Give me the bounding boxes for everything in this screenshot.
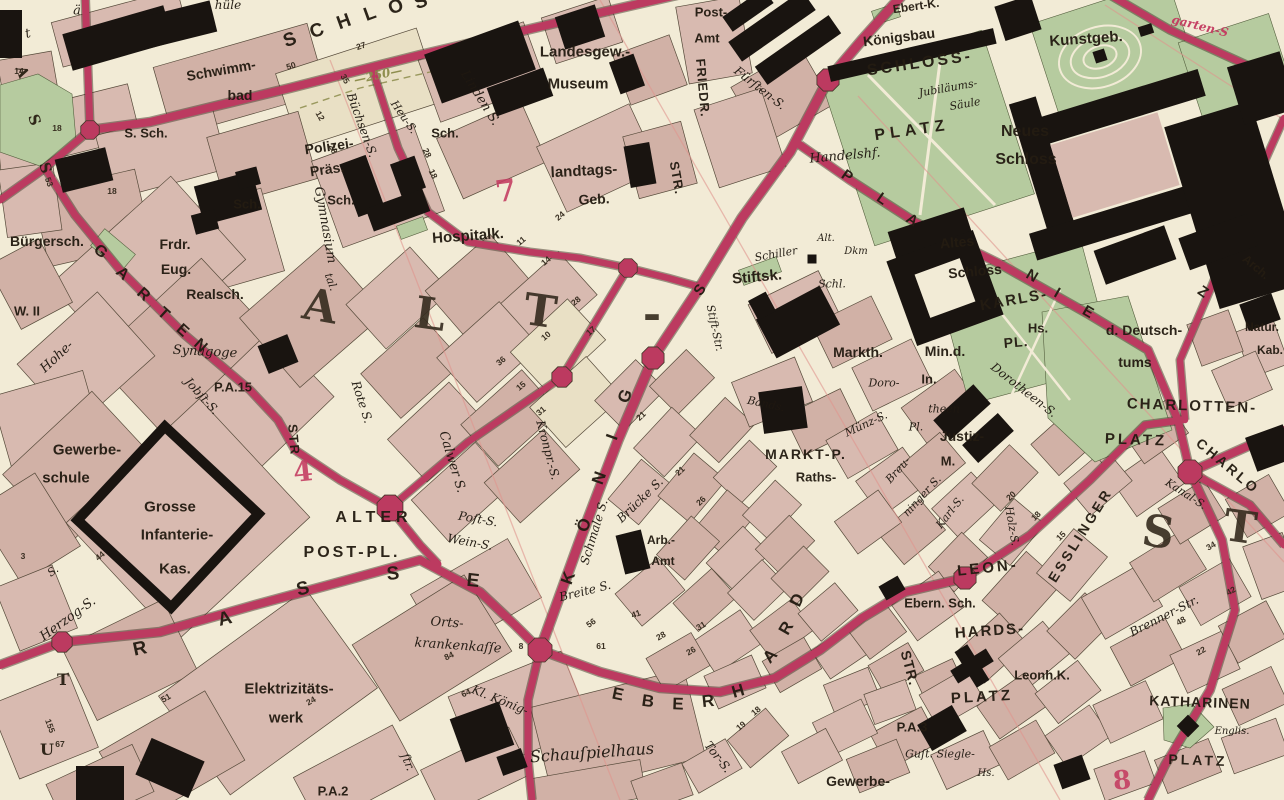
map-label: Gewerbe- — [53, 443, 121, 458]
building — [0, 10, 22, 58]
map-label: Sch. — [327, 194, 354, 207]
map-label: PL. — [1003, 334, 1029, 350]
map-label: Raths- — [796, 471, 836, 484]
map-label: Elektrizitäts- — [244, 682, 333, 697]
map-label: Amt — [651, 555, 674, 567]
building — [616, 529, 651, 574]
map-label: PLATZ — [1168, 752, 1228, 768]
map-label: Frdr. — [159, 237, 190, 251]
map-label: d. Deutsch- — [1106, 323, 1182, 337]
map-label: P.A.3 — [897, 721, 928, 734]
map-label: schule — [42, 471, 90, 486]
map-label: - — [643, 293, 661, 337]
map-label: S. Sch. — [124, 127, 167, 140]
map-label: L — [412, 291, 449, 339]
map-label: R — [701, 692, 715, 710]
historical-city-map[interactable]: SCHLOSGARTENSTRRASSEALTERPOST-PL.KÖNIGSF… — [0, 0, 1284, 800]
map-label: Englis. — [1215, 727, 1250, 737]
map-label: Schloss — [995, 152, 1056, 168]
junction-dot — [528, 638, 552, 662]
map-label: Museum — [548, 77, 609, 92]
map-label: W. II — [14, 305, 40, 318]
map-label: Doro- — [868, 378, 899, 389]
map-label: U — [40, 742, 54, 758]
map-label: Hs. — [1028, 322, 1048, 335]
map-label: landtags- — [550, 162, 617, 180]
map-label: M. — [941, 455, 955, 468]
map-label: tums — [1118, 355, 1151, 369]
map-label: Markth. — [833, 345, 883, 359]
map-label: Landesgew.- — [540, 45, 630, 60]
house-number: 8 — [519, 642, 524, 651]
map-label: E — [466, 571, 481, 591]
map-label: Geb. — [578, 191, 610, 207]
map-label: Schl. — [818, 279, 846, 290]
map-label: Justiz- — [940, 429, 984, 443]
junction-dot — [81, 121, 99, 139]
map-label: S — [1139, 509, 1177, 557]
building — [1053, 755, 1090, 790]
map-label: Orts- — [430, 615, 464, 630]
map-label: 8 — [1112, 767, 1133, 795]
map-label: Arb.- — [647, 534, 675, 546]
house-number: 67 — [55, 740, 64, 749]
map-label: Stiftsk. — [731, 267, 782, 286]
map-label: Infanterie- — [141, 528, 214, 543]
map-label: Leonh.K. — [1014, 669, 1070, 682]
map-label: Dkm — [844, 247, 868, 257]
map-label: Kab. — [1257, 344, 1283, 356]
map-label: T — [57, 672, 69, 688]
map-label: Kas. — [159, 562, 191, 577]
map-label: ALTER — [335, 510, 412, 526]
map-label: KATHARINEN — [1149, 693, 1251, 711]
map-label: Altes — [939, 234, 974, 251]
house-number: 61 — [596, 642, 605, 651]
map-label: In. — [921, 373, 936, 386]
map-label: MARKT-P. — [765, 447, 847, 461]
map-label: Alt. — [817, 234, 835, 244]
house-number: 3 — [21, 552, 26, 561]
building — [808, 255, 817, 264]
map-label: hüle — [215, 0, 241, 11]
map-label: 7 — [494, 176, 519, 209]
junction-dot — [619, 259, 637, 277]
map-label: werk — [269, 711, 303, 726]
map-label: PLATZ — [951, 688, 1014, 706]
map-label: Bürgersch. — [10, 234, 84, 248]
map-label: T — [521, 288, 560, 336]
map-label: Natur. — [1245, 321, 1279, 333]
map-canvas — [0, 0, 1284, 800]
house-number: 14 — [14, 67, 23, 76]
map-label: T — [1221, 504, 1260, 552]
map-label: theen — [928, 404, 960, 415]
map-label: Pl. — [909, 422, 923, 433]
map-label: PLATZ — [1105, 431, 1168, 448]
map-label: Ebern. Sch. — [904, 597, 976, 610]
map-label: B — [641, 692, 656, 711]
map-label: P.A.2 — [318, 785, 349, 798]
map-label: Neues — [1001, 124, 1049, 140]
map-label: Amt — [694, 32, 719, 45]
map-label: STR — [286, 423, 302, 456]
map-label: ä — [73, 5, 81, 18]
building — [76, 766, 124, 800]
house-number: 18 — [107, 187, 116, 196]
map-label: Gewerbe- — [826, 774, 890, 788]
map-label: Min.d. — [925, 344, 965, 358]
map-label: bad — [228, 88, 253, 102]
map-label: Synagoge — [172, 344, 237, 360]
building — [1245, 424, 1284, 472]
map-label: 4 — [292, 457, 314, 487]
map-label: Hs. — [977, 769, 994, 779]
map-label: Eug. — [161, 262, 191, 276]
map-label: Guſt. Siegle- — [905, 749, 975, 760]
junction-dot — [1178, 460, 1202, 484]
junction-dot — [642, 347, 664, 369]
house-number: 18 — [52, 124, 61, 133]
map-label: P.A.15 — [214, 381, 252, 394]
map-label: Post- — [695, 6, 728, 19]
map-label: CHARLOTTEN- — [1127, 396, 1258, 416]
map-label: Sch. — [233, 198, 260, 211]
map-label: E — [672, 695, 684, 712]
map-label: Grosse — [144, 500, 196, 515]
map-label: Sch. — [431, 127, 458, 140]
map-label: S — [386, 564, 400, 584]
map-label: POST-PL. — [304, 545, 401, 561]
map-label: Realsch. — [186, 287, 244, 301]
junction-dot — [552, 367, 572, 387]
